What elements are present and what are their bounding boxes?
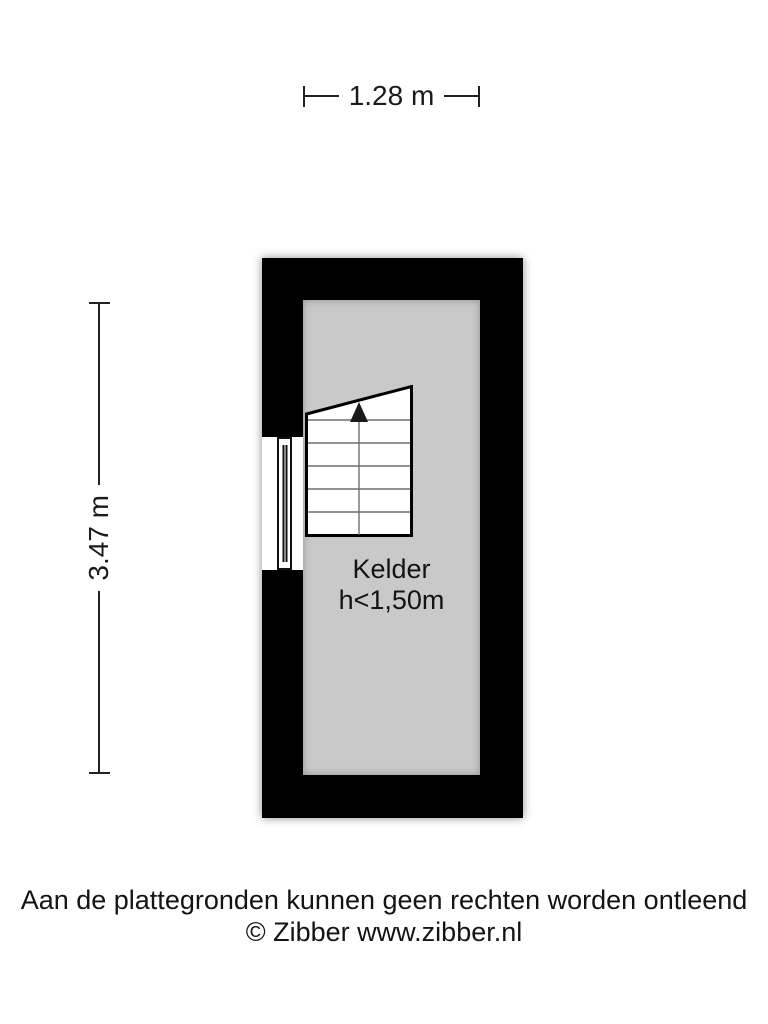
dimension-width-label: 1.28 m: [339, 82, 445, 110]
dimension-height-label: 3.47 m: [85, 485, 113, 591]
floorplan: Kelder h<1,50m: [262, 258, 523, 818]
dimension-end-tick: [478, 86, 480, 107]
footer: Aan de plattegronden kunnen geen rechten…: [0, 884, 768, 948]
credit-text: © Zibber www.zibber.nl: [0, 916, 768, 948]
dimension-line: [98, 304, 100, 485]
dimension-height: 3.47 m: [84, 302, 114, 774]
window-glass: [282, 445, 287, 562]
dimension-end-tick: [89, 772, 110, 774]
disclaimer-text: Aan de plattegronden kunnen geen rechten…: [0, 884, 768, 916]
room-label: Kelder h<1,50m: [303, 554, 480, 616]
dimension-line: [305, 95, 339, 97]
dimension-line: [98, 591, 100, 772]
dimension-width: 1.28 m: [303, 77, 480, 115]
window-frame: [277, 437, 292, 570]
room-height-note: h<1,50m: [303, 585, 480, 616]
stairs: [305, 385, 413, 537]
floorplan-page: 1.28 m 3.47 m: [0, 0, 768, 1024]
window-opening: [262, 437, 303, 570]
dimension-line: [444, 95, 478, 97]
room-floor: [303, 300, 480, 775]
room-name: Kelder: [303, 554, 480, 585]
